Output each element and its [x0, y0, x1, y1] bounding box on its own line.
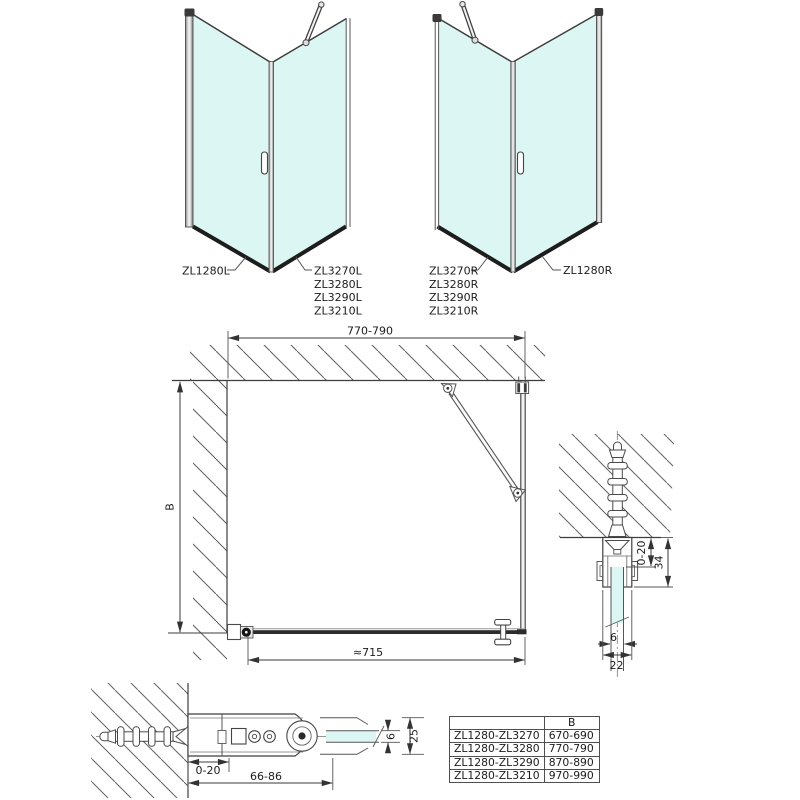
- technical-drawing-page: ZL1280L ZL3270L ZL3280L ZL3290L ZL3210L …: [0, 0, 800, 800]
- hinge-pivot: [287, 721, 317, 751]
- plan-view-drawing: 770-790 B ≈715: [164, 325, 546, 666]
- wall-profile-plan: [228, 625, 241, 640]
- clamp-break: [357, 748, 368, 754]
- shower-door-technical-drawing: ZL1280L ZL3270L ZL3280L ZL3290L ZL3210L …: [0, 0, 800, 800]
- dim-width-label: 22: [610, 659, 624, 672]
- clamp-block: [232, 729, 247, 745]
- dim-glass-thickness: 6: [381, 721, 400, 752]
- door-model-label: ZL1280R: [563, 264, 613, 277]
- leader-line: [542, 256, 561, 270]
- leader-line: [227, 257, 246, 270]
- wall-profile-bar: [597, 13, 602, 223]
- hinge-section-drawing: 0-20 66-86 6 25: [91, 683, 424, 798]
- table-row: ZL1280-ZL3270 670-690: [450, 730, 600, 743]
- door-glass-panel: [516, 14, 598, 271]
- dim-glass-label: 6: [385, 733, 398, 740]
- profile-top-cap: [595, 8, 604, 16]
- dim-depth-B: B: [164, 382, 181, 632]
- width-cell: 770-790: [544, 743, 599, 756]
- width-header-cell: B: [544, 717, 599, 730]
- leader-line: [296, 257, 312, 270]
- table-row: ZL1280-ZL3290 870-890: [450, 756, 600, 769]
- panel-model-label: ZL3210R: [429, 304, 479, 317]
- wall-hatch-left: [193, 381, 227, 660]
- dim-depth-label: 34: [653, 556, 666, 570]
- size-table: B ZL1280-ZL3270 670-690 ZL1280-ZL3280 77…: [449, 716, 600, 783]
- door-corner-block: [517, 629, 527, 634]
- dim-adjustment: 0-20: [635, 539, 651, 566]
- corner-post: [269, 62, 274, 273]
- dim-glass-label: 6: [610, 631, 617, 644]
- door-model-label: ZL1280L: [182, 265, 231, 278]
- model-cell: ZL1280-ZL3280: [450, 743, 545, 756]
- panel-model-label: ZL3210L: [314, 304, 363, 317]
- width-cell: 670-690: [544, 730, 599, 743]
- width-cell: 970-990: [544, 769, 599, 782]
- profile-top-cap: [433, 14, 442, 22]
- glass-pane-section: [611, 567, 624, 623]
- table-row: ZL1280-ZL3280 770-790: [450, 743, 600, 756]
- corner-post: [511, 62, 516, 273]
- wall-hatch-top: [190, 345, 545, 381]
- dim-adjust-label: 0-20: [196, 764, 221, 777]
- profile-top-cap: [185, 9, 195, 17]
- door-handle: [262, 152, 268, 174]
- dim-span-label: 66-86: [250, 770, 282, 783]
- dim-adjustment: 0-20: [188, 758, 229, 790]
- wall-profile-bar: [186, 12, 194, 227]
- clamp-break: [357, 718, 368, 725]
- model-cell: ZL1280-ZL3270: [450, 730, 545, 743]
- wall-profile-section-drawing: 0-20 34 6 22: [559, 431, 675, 677]
- panel-model-label: ZL3270R: [429, 265, 479, 278]
- panel-model-label: ZL3280L: [314, 278, 363, 291]
- table-row: ZL1280-ZL3210 970-990: [450, 769, 600, 782]
- dim-profile-depth: 34: [653, 539, 669, 587]
- dim-adjust-label: 0-20: [635, 541, 648, 566]
- dim-depth-label: B: [164, 503, 177, 511]
- door-leaf: [248, 630, 524, 634]
- panel-model-label: ZL3280R: [429, 278, 479, 291]
- model-header-cell: [450, 717, 545, 730]
- unit-left-drawing: ZL1280L ZL3270L ZL3280L ZL3290L ZL3210L: [182, 2, 363, 318]
- panel-model-label: ZL3270L: [314, 265, 363, 278]
- table-header-row: B: [450, 717, 600, 730]
- dim-door-width: ≈715: [248, 636, 525, 665]
- dim-height-label: 25: [408, 729, 421, 743]
- dim-door-label: ≈715: [353, 646, 383, 659]
- panel-model-label: ZL3290R: [429, 291, 479, 304]
- panel-model-label: ZL3290L: [314, 291, 363, 304]
- fixed-panel-fill: [522, 381, 525, 632]
- door-hinge-plan: [241, 627, 254, 639]
- model-cell: ZL1280-ZL3210: [450, 769, 545, 782]
- dim-width-label: 770-790: [347, 325, 393, 338]
- door-handle: [518, 152, 524, 174]
- unit-right-drawing: ZL3270R ZL3280R ZL3290R ZL3210R ZL1280R: [429, 1, 613, 317]
- model-cell: ZL1280-ZL3290: [450, 756, 545, 769]
- width-cell: 870-890: [544, 756, 599, 769]
- glass-pane-section: [326, 731, 376, 743]
- screw-hole-center: [252, 734, 256, 738]
- dim-profile-height: 25: [402, 718, 424, 755]
- adjust-notch: [218, 731, 226, 744]
- support-brace: [442, 384, 526, 502]
- screw-hole-center: [267, 734, 271, 738]
